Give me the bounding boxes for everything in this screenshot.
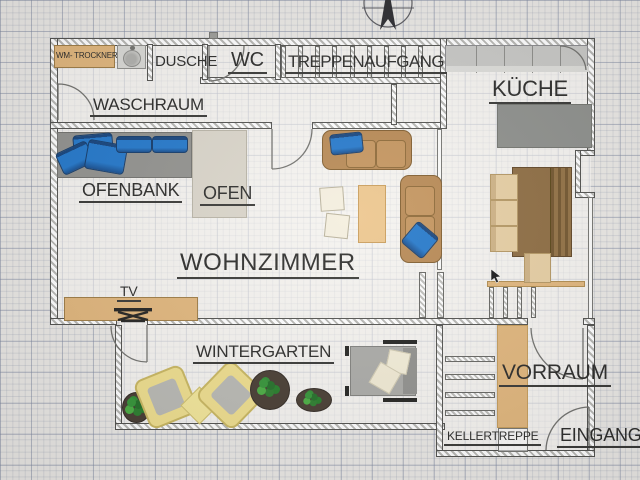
wall-vorraum-left bbox=[436, 325, 443, 457]
label-ofenbank: OFENBANK bbox=[79, 181, 182, 203]
cellar-stair-tread bbox=[445, 410, 495, 416]
label-tv: TV bbox=[117, 284, 141, 302]
wall-living-bottom-b bbox=[147, 318, 528, 325]
dining-bench bbox=[550, 168, 571, 256]
label-wintergarten: WINTERGARTEN bbox=[193, 343, 334, 364]
wall-below-stairs bbox=[200, 77, 447, 84]
label-dusche: DUSCHE bbox=[155, 54, 217, 69]
wall-corridor-end bbox=[391, 84, 397, 125]
railing-post bbox=[489, 287, 494, 318]
wall-wintergarten-left bbox=[115, 325, 122, 430]
label-kellertreppe: KELLERTREPPE bbox=[444, 430, 541, 446]
wall-waschraum-bottom bbox=[50, 122, 272, 129]
label-waschraum: WASCHRAUM bbox=[90, 96, 207, 117]
label-ofen: OFEN bbox=[200, 184, 255, 206]
label-wohnzimmer: WOHNZIMMER bbox=[177, 251, 359, 279]
label-wm-trockner: WM- TROCKNER bbox=[56, 52, 117, 60]
washing-machine-icon bbox=[117, 45, 146, 69]
plant-leaves bbox=[127, 398, 136, 407]
dining-chair bbox=[490, 200, 518, 226]
plant-pot bbox=[296, 388, 332, 412]
dining-chair bbox=[524, 253, 551, 283]
plant-leaves bbox=[259, 379, 268, 388]
counter-front-edge bbox=[446, 66, 589, 72]
wall-left bbox=[50, 38, 58, 325]
daybed-rail bbox=[345, 346, 349, 356]
plant-leaves bbox=[305, 392, 312, 399]
label-wc: WC bbox=[228, 50, 267, 74]
floor-plan-canvas: WM- TROCKNER DUSCHE WC TREPPENAUFGANG KÜ… bbox=[0, 0, 640, 480]
coffee-table bbox=[358, 185, 386, 243]
cellar-stair-tread bbox=[445, 356, 495, 362]
railing-post bbox=[503, 287, 508, 318]
wall-dusche-partition bbox=[147, 44, 153, 81]
dining-chair bbox=[490, 174, 518, 200]
daybed-rail bbox=[345, 386, 349, 396]
label-kueche: KÜCHE bbox=[489, 78, 571, 104]
daybed-rail bbox=[383, 398, 417, 402]
washing-machine-drum bbox=[123, 50, 141, 67]
blue-pillow bbox=[152, 136, 188, 153]
sofa-cushion bbox=[376, 140, 406, 168]
daybed bbox=[345, 340, 425, 404]
daybed-rail bbox=[383, 340, 417, 344]
sofa-cushion bbox=[405, 186, 435, 216]
washing-machine-dial bbox=[130, 46, 135, 50]
railing-post bbox=[437, 272, 444, 318]
kitchen-island bbox=[497, 104, 592, 148]
wall-right-middle bbox=[588, 197, 593, 325]
blue-pillow bbox=[329, 131, 364, 155]
railing-post bbox=[419, 272, 426, 318]
railing-post bbox=[517, 287, 522, 318]
lounge-chair-seat bbox=[210, 374, 252, 416]
cellar-stair-tread bbox=[445, 392, 495, 398]
label-treppenaufgang: TREPPENAUFGANG bbox=[285, 53, 447, 74]
lounge-chair-seat bbox=[146, 377, 185, 416]
plant-pot bbox=[250, 370, 290, 410]
wall-right-jog-side bbox=[575, 150, 581, 198]
railing-post bbox=[531, 287, 536, 318]
side-stool bbox=[324, 213, 350, 239]
side-stool bbox=[319, 186, 345, 212]
kitchen-counter bbox=[445, 45, 588, 72]
blue-pillow bbox=[116, 136, 152, 153]
label-eingang: EINGANG bbox=[557, 426, 640, 448]
chimney-marker bbox=[209, 32, 218, 39]
wall-corridor-bottom bbox=[312, 122, 447, 129]
cellar-stair-tread bbox=[445, 374, 495, 380]
label-vorraum: VORRAUM bbox=[499, 362, 611, 387]
north-arrow-icon bbox=[362, 0, 414, 30]
dining-chair bbox=[490, 226, 518, 252]
wall-living-bottom-c bbox=[583, 318, 595, 325]
